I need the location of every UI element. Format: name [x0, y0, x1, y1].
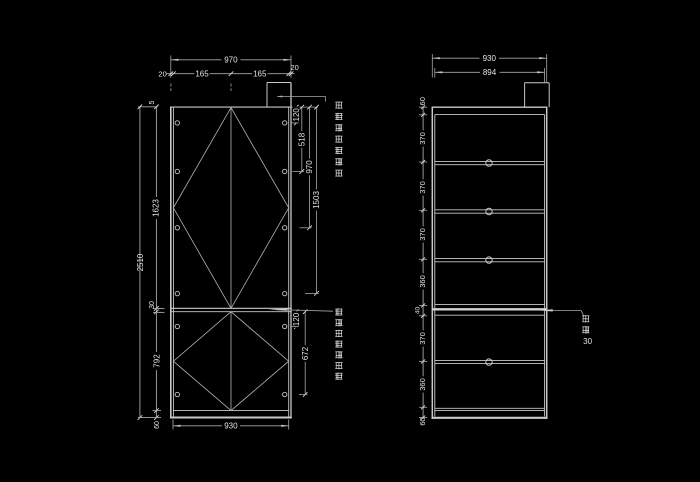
svg-text:930: 930 — [483, 54, 497, 63]
svg-text:1503: 1503 — [312, 191, 321, 209]
svg-text:60: 60 — [418, 97, 427, 105]
svg-text:165: 165 — [195, 69, 209, 78]
svg-text:2510: 2510 — [136, 253, 145, 271]
svg-text:370: 370 — [418, 228, 427, 241]
svg-text:970: 970 — [305, 160, 314, 174]
svg-text:30: 30 — [149, 301, 156, 309]
svg-text:40: 40 — [415, 307, 422, 315]
svg-text:360: 360 — [418, 275, 427, 288]
svg-text:60: 60 — [154, 421, 161, 429]
svg-text:970: 970 — [224, 55, 238, 64]
svg-text:518: 518 — [298, 132, 307, 146]
svg-text:20: 20 — [290, 63, 298, 72]
svg-text:20: 20 — [158, 69, 166, 78]
svg-text:930: 930 — [224, 422, 238, 431]
svg-text:894: 894 — [483, 68, 497, 77]
svg-text:5: 5 — [149, 100, 156, 104]
svg-text:370: 370 — [418, 181, 427, 194]
svg-text:1623: 1623 — [152, 199, 161, 217]
svg-text:792: 792 — [153, 354, 162, 368]
svg-text:165: 165 — [253, 69, 267, 78]
svg-text:370: 370 — [418, 332, 427, 345]
svg-text:672: 672 — [301, 346, 310, 360]
svg-text:120: 120 — [292, 108, 301, 122]
svg-text:60: 60 — [418, 417, 427, 425]
svg-text:120: 120 — [292, 312, 301, 326]
svg-text:30: 30 — [583, 337, 592, 346]
svg-text:370: 370 — [418, 132, 427, 145]
svg-text:360: 360 — [418, 378, 427, 391]
